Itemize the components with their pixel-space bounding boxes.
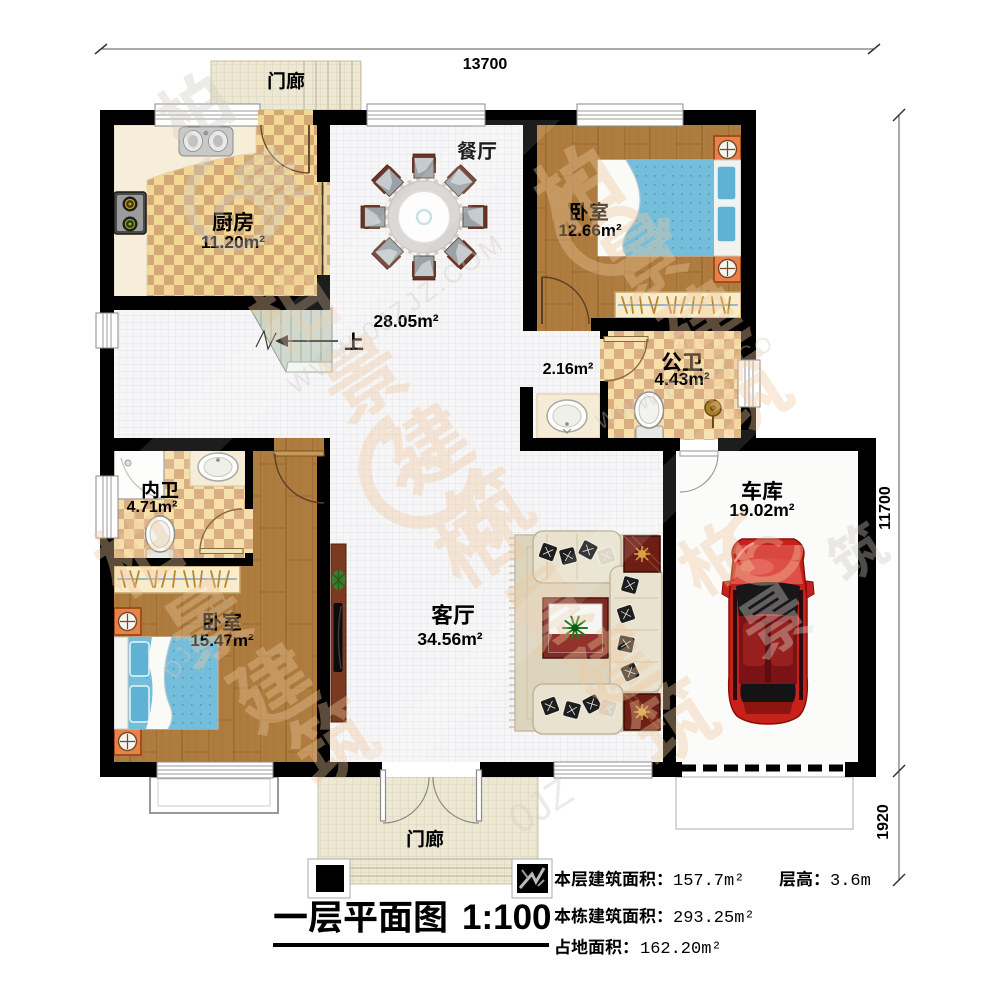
svg-text:2.16m²: 2.16m² <box>543 361 594 378</box>
svg-text:11700: 11700 <box>877 486 894 530</box>
svg-text:34.56m²: 34.56m² <box>417 629 482 649</box>
svg-text:162.20m²: 162.20m² <box>640 940 722 959</box>
svg-text:1920: 1920 <box>875 804 892 840</box>
svg-text:13700: 13700 <box>463 56 508 73</box>
svg-text:157.7m²: 157.7m² <box>673 872 744 891</box>
svg-text:1:100: 1:100 <box>462 898 552 937</box>
svg-text:293.25m²: 293.25m² <box>673 909 755 928</box>
svg-text:3.6m: 3.6m <box>830 872 871 891</box>
